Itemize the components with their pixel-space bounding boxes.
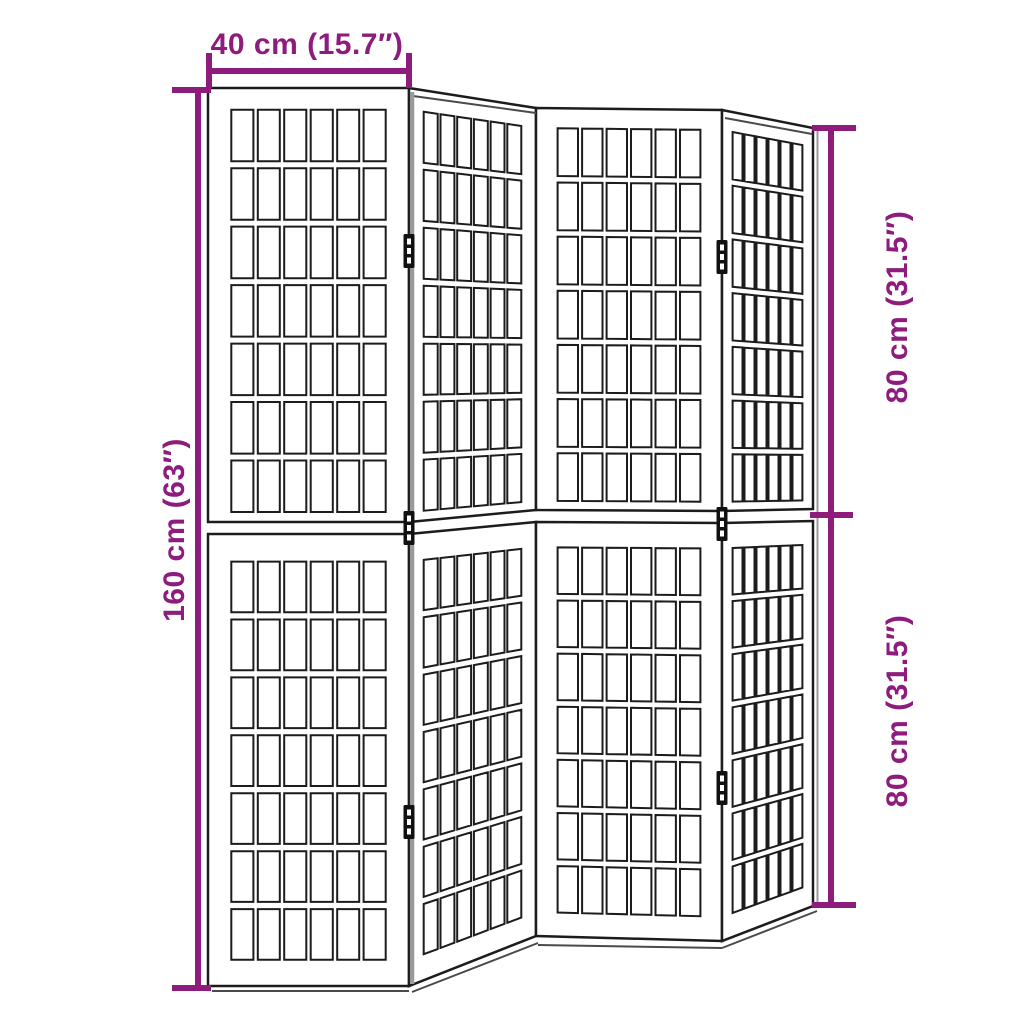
hinge-icon <box>717 771 728 805</box>
dimension-label-height-bottom-half: 80 cm (31.5″) <box>881 615 915 808</box>
diagram-canvas: 40 cm (15.7″) 160 cm (63″) 80 cm (31.5″)… <box>0 0 1024 1024</box>
panel-thickness-line <box>538 945 722 948</box>
hinge-icon <box>404 805 415 839</box>
panel-4 <box>722 110 813 941</box>
hinge-icon <box>404 511 415 545</box>
panel-1 <box>208 88 409 986</box>
dimension-label-height-total: 160 cm (63″) <box>158 438 192 622</box>
dimension-label-width: 40 cm (15.7″) <box>211 28 404 62</box>
dimension-label-height-top-half: 80 cm (31.5″) <box>881 211 915 404</box>
panel-3 <box>536 108 722 941</box>
hinge-icon <box>404 234 415 268</box>
hinge-icon <box>717 240 728 274</box>
room-divider-drawing <box>0 0 1024 1024</box>
panel-2 <box>409 88 536 986</box>
hinge-icon <box>717 507 728 541</box>
